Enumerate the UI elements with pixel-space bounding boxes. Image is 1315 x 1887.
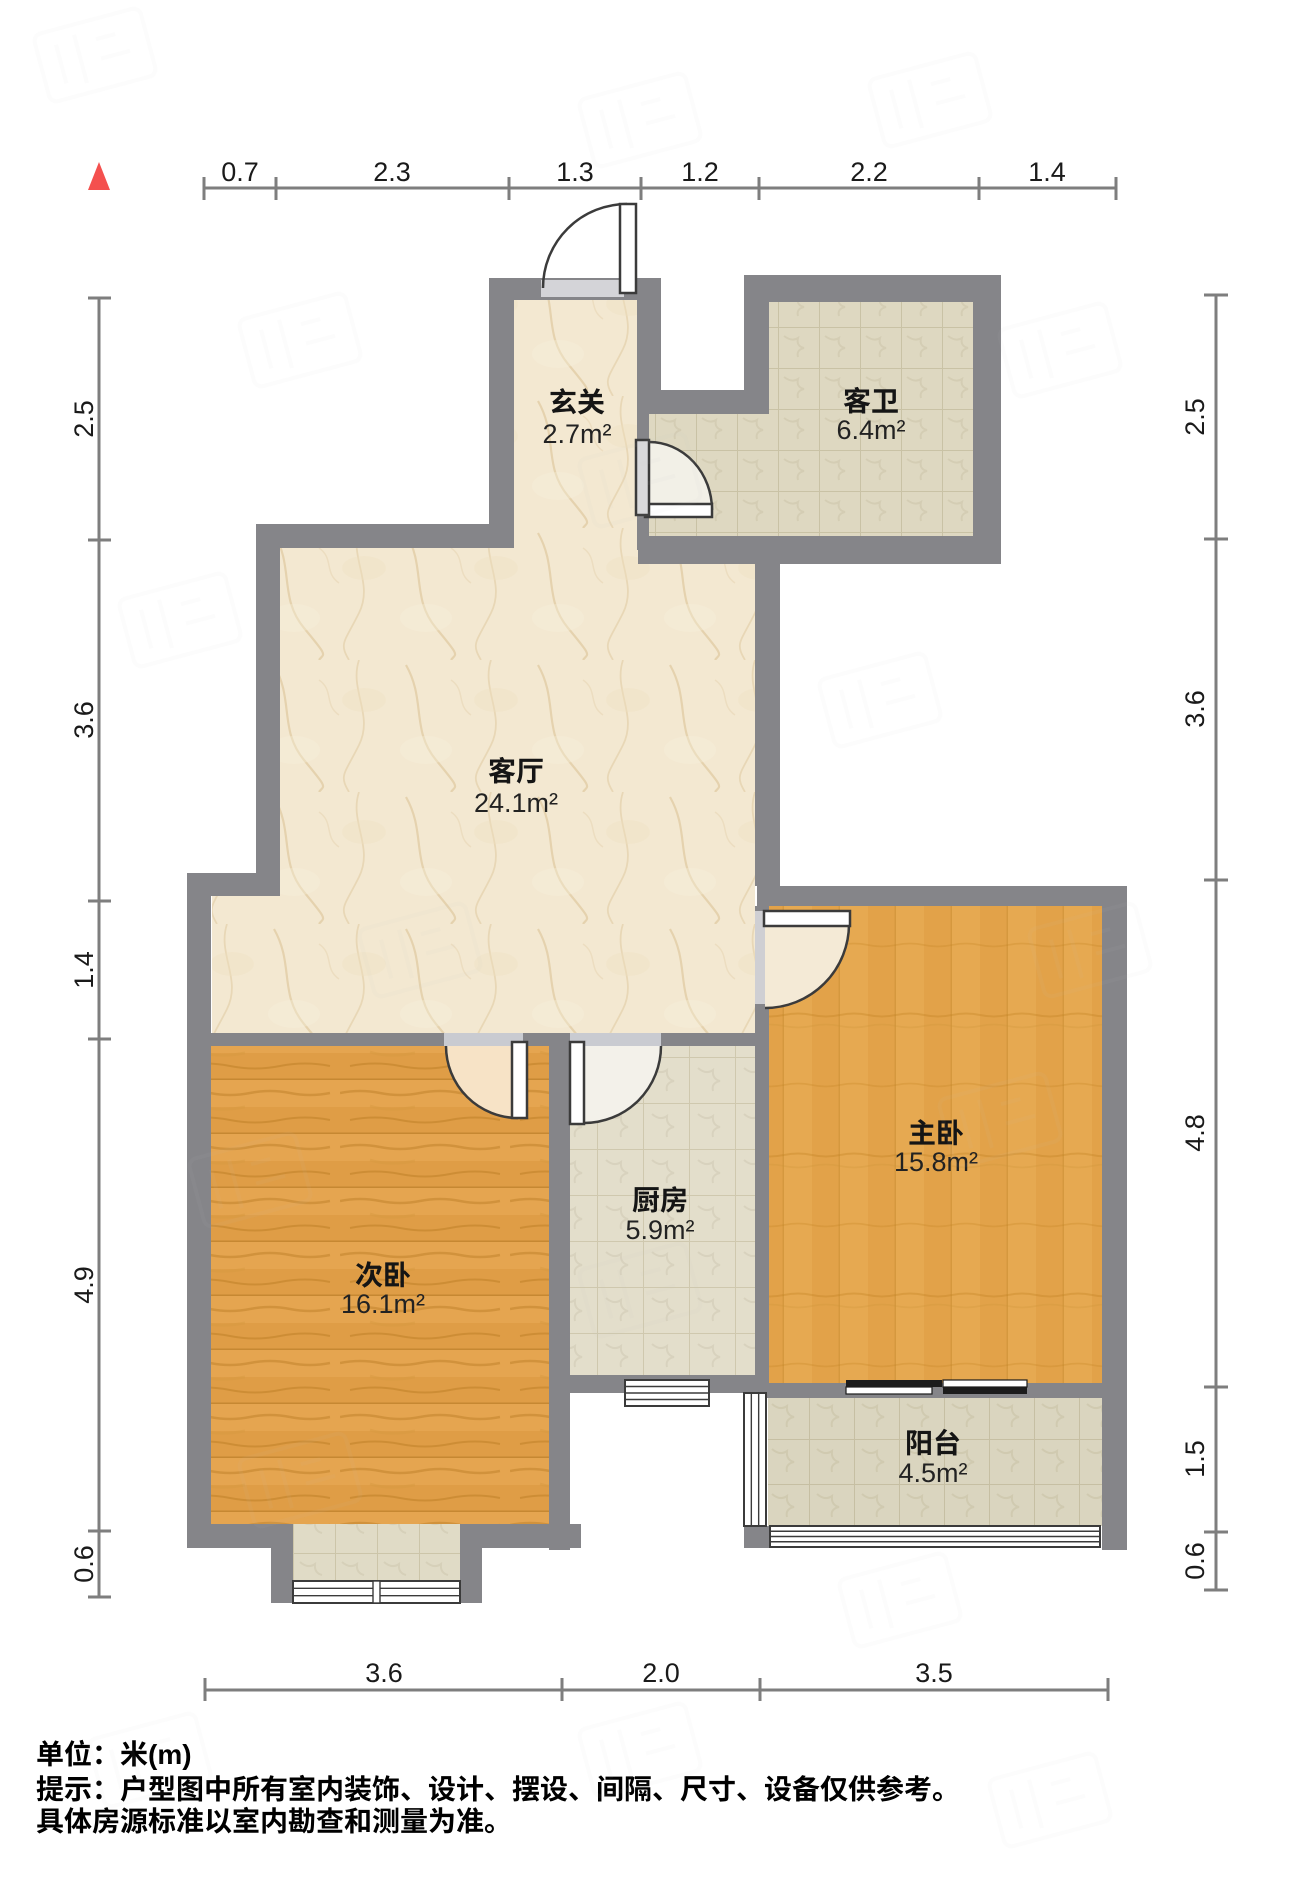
svg-text:6.4m²: 6.4m² <box>836 415 905 445</box>
svg-text:1.2: 1.2 <box>681 157 719 187</box>
svg-text:4.9: 4.9 <box>69 1266 99 1304</box>
svg-text:2.3: 2.3 <box>373 157 411 187</box>
svg-text:0.7: 0.7 <box>221 157 259 187</box>
svg-text:2.0: 2.0 <box>642 1658 680 1688</box>
svg-text:3.6: 3.6 <box>1180 690 1210 728</box>
svg-text:1.4: 1.4 <box>69 951 99 989</box>
svg-text:3.6: 3.6 <box>69 701 99 739</box>
svg-text:3.5: 3.5 <box>915 1658 953 1688</box>
svg-text:1.4: 1.4 <box>1028 157 1066 187</box>
svg-text:2.2: 2.2 <box>850 157 888 187</box>
svg-text:0.6: 0.6 <box>1180 1542 1210 1580</box>
svg-text:2.5: 2.5 <box>1180 398 1210 436</box>
svg-text:1.3: 1.3 <box>556 157 594 187</box>
svg-text:15.8m²: 15.8m² <box>894 1147 978 1177</box>
svg-text:0.6: 0.6 <box>69 1545 99 1583</box>
svg-text:2.7m²: 2.7m² <box>542 419 611 449</box>
svg-text:2.5: 2.5 <box>69 400 99 438</box>
svg-text:1.5: 1.5 <box>1180 1440 1210 1478</box>
svg-text:24.1m²: 24.1m² <box>474 788 558 818</box>
svg-text:5.9m²: 5.9m² <box>625 1215 694 1245</box>
svg-text:3.6: 3.6 <box>365 1658 403 1688</box>
svg-text:4.5m²: 4.5m² <box>898 1458 967 1488</box>
svg-text:16.1m²: 16.1m² <box>341 1289 425 1319</box>
svg-text:4.8: 4.8 <box>1180 1114 1210 1152</box>
